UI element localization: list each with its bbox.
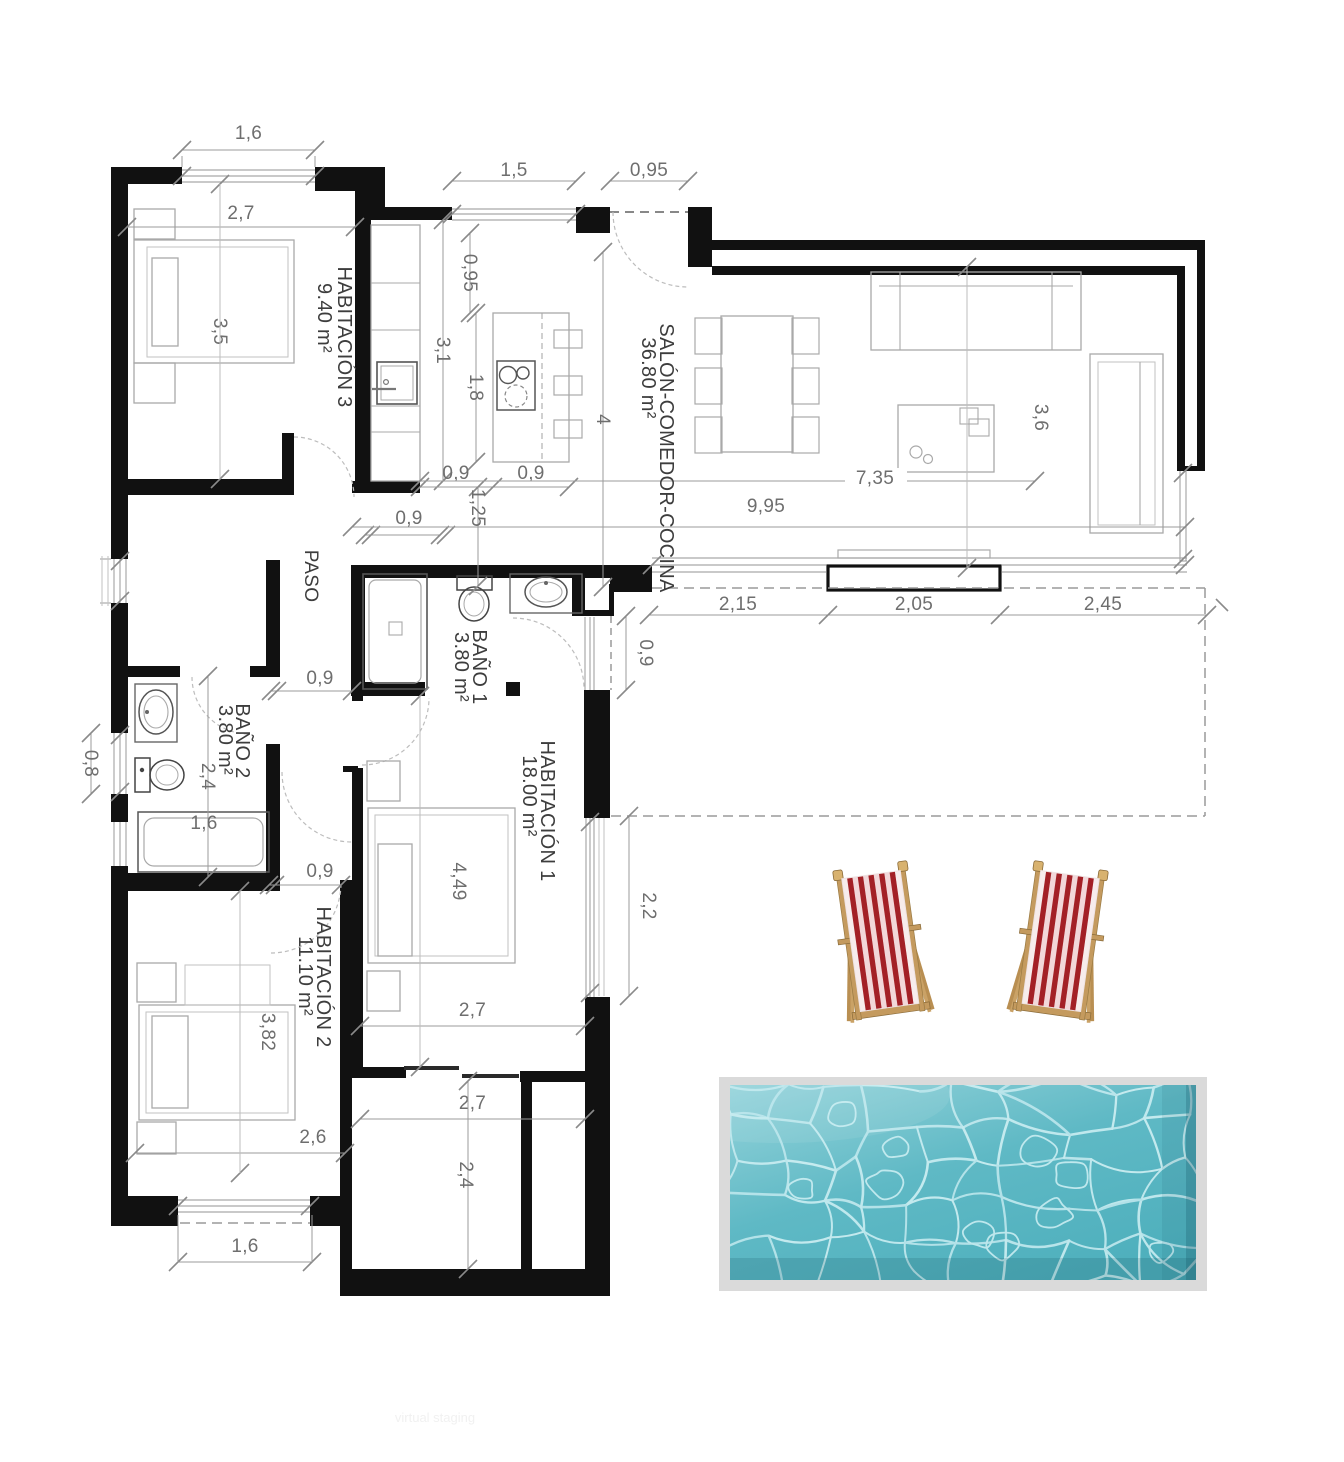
svg-text:9,95: 9,95 bbox=[747, 496, 785, 517]
svg-text:0,9: 0,9 bbox=[635, 639, 656, 666]
svg-text:0,9: 0,9 bbox=[306, 861, 333, 882]
svg-text:1,6: 1,6 bbox=[231, 1236, 258, 1257]
svg-text:3,5: 3,5 bbox=[209, 318, 230, 345]
svg-text:3.80 m²: 3.80 m² bbox=[450, 632, 472, 702]
svg-text:4,49: 4,49 bbox=[448, 862, 469, 900]
svg-text:HABITACIÓN 3: HABITACIÓN 3 bbox=[333, 266, 356, 407]
svg-text:1,6: 1,6 bbox=[190, 813, 217, 834]
svg-text:1,25: 1,25 bbox=[467, 489, 488, 527]
svg-text:3,82: 3,82 bbox=[257, 1013, 278, 1051]
svg-text:4: 4 bbox=[592, 414, 613, 425]
svg-text:0,95: 0,95 bbox=[459, 254, 480, 292]
svg-text:3,1: 3,1 bbox=[432, 337, 453, 364]
svg-text:36.80 m²: 36.80 m² bbox=[637, 337, 659, 418]
svg-text:2,4: 2,4 bbox=[455, 1161, 476, 1188]
svg-text:3,6: 3,6 bbox=[1030, 404, 1051, 431]
svg-text:2,7: 2,7 bbox=[227, 203, 254, 224]
svg-text:2,45: 2,45 bbox=[1084, 594, 1122, 615]
svg-text:0,95: 0,95 bbox=[630, 160, 668, 181]
svg-text:2,15: 2,15 bbox=[719, 594, 757, 615]
svg-text:1,5: 1,5 bbox=[500, 160, 527, 181]
svg-text:PASO: PASO bbox=[300, 550, 321, 603]
svg-text:2,7: 2,7 bbox=[459, 1093, 486, 1114]
svg-text:0,9: 0,9 bbox=[306, 668, 333, 689]
svg-text:1,8: 1,8 bbox=[465, 374, 486, 401]
svg-text:9.40 m²: 9.40 m² bbox=[313, 283, 335, 353]
svg-text:0,9: 0,9 bbox=[395, 508, 422, 529]
svg-text:2,2: 2,2 bbox=[638, 892, 659, 919]
svg-text:7,35: 7,35 bbox=[856, 468, 894, 489]
svg-text:18.00 m²: 18.00 m² bbox=[518, 755, 540, 836]
svg-text:1,6: 1,6 bbox=[235, 123, 262, 144]
svg-text:0,8: 0,8 bbox=[80, 750, 101, 777]
svg-text:3.80 m²: 3.80 m² bbox=[214, 705, 236, 775]
svg-text:virtual staging: virtual staging bbox=[395, 1410, 475, 1425]
svg-text:2,7: 2,7 bbox=[459, 1000, 486, 1021]
svg-text:11.10 m²: 11.10 m² bbox=[294, 936, 316, 1016]
svg-text:2,05: 2,05 bbox=[895, 594, 933, 615]
svg-text:2,6: 2,6 bbox=[299, 1127, 326, 1148]
